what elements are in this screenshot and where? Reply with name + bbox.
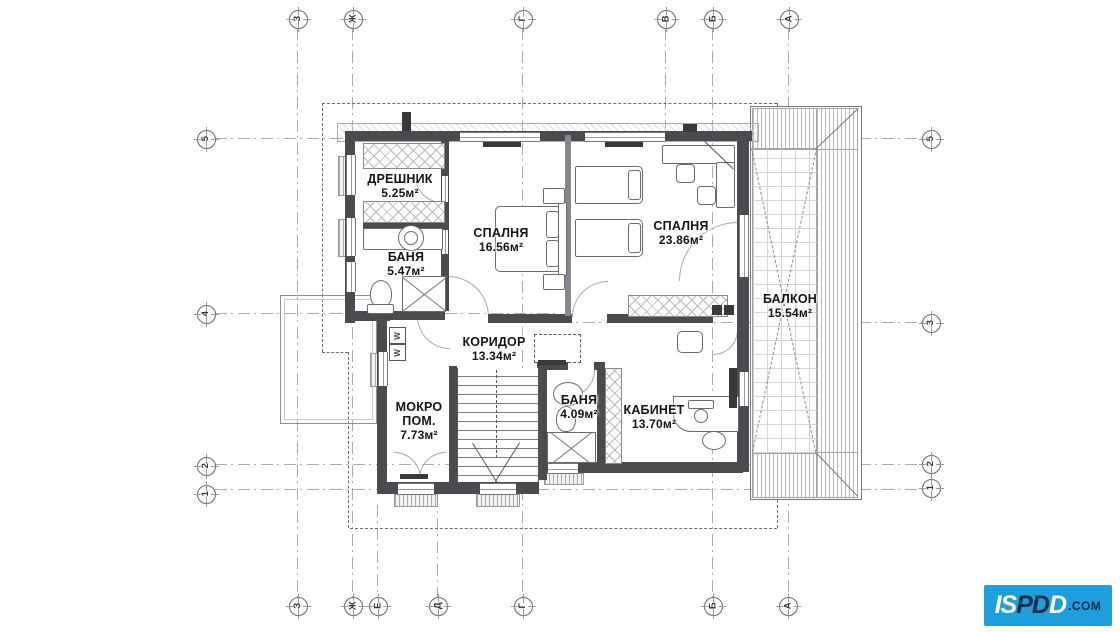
staircase	[457, 368, 539, 482]
grid-marker-label: В	[661, 16, 671, 23]
chimney	[683, 124, 697, 132]
nightstand	[543, 274, 565, 290]
room-area: 15.54м²	[744, 306, 836, 320]
grid-marker-bottom-Д: Д	[429, 597, 448, 616]
door-arc	[448, 276, 489, 317]
room-name: КОРИДОР	[462, 335, 525, 349]
grid-marker-left-1: 1	[197, 485, 216, 504]
wardrobe	[363, 143, 445, 169]
pillow	[628, 170, 641, 200]
grid-marker-left-5: 5	[197, 130, 216, 149]
grid-marker-label: Г	[518, 16, 528, 21]
wall-left-lower	[377, 318, 387, 492]
grid-marker-label: Б	[708, 603, 718, 610]
cabinet-block	[712, 305, 722, 315]
window	[548, 463, 578, 474]
room-area: 7.73м²	[389, 428, 449, 442]
room-name: СПАЛНЯ	[653, 219, 708, 233]
room-label-banya2: БАНЯ 4.09м²	[548, 393, 610, 421]
radiator	[605, 142, 643, 147]
door-arc	[417, 316, 450, 349]
grid-marker-label: 1	[201, 491, 211, 496]
grid-marker-top-З: З	[289, 10, 308, 29]
grid-marker-bottom-З: З	[289, 597, 308, 616]
grid-line-v	[437, 495, 438, 598]
stair-direction-line	[496, 370, 497, 458]
window	[739, 372, 749, 406]
grid-marker-top-Г: Г	[514, 10, 533, 29]
room-area: 13.70м²	[608, 417, 700, 431]
window	[480, 483, 516, 495]
roof-outline	[322, 103, 777, 104]
wall-interior	[594, 362, 605, 370]
shower	[402, 276, 446, 312]
grid-marker-label: Ж	[348, 15, 358, 24]
grid-marker-label: 3	[926, 320, 936, 325]
grid-marker-label: 5	[201, 136, 211, 141]
window-sill	[544, 473, 584, 485]
washer-label: W	[394, 332, 402, 340]
grid-marker-label: А	[784, 16, 794, 23]
chair	[697, 186, 716, 205]
grid-marker-label: Б	[708, 16, 718, 23]
grid-marker-top-А: А	[780, 10, 799, 29]
room-area: 5.25м²	[352, 186, 448, 200]
room-label-balkon: БАЛКОН 15.54м²	[744, 292, 836, 320]
logo-letter: P	[1016, 591, 1032, 619]
toilet-tank	[367, 304, 394, 314]
logo-letter: D	[1049, 591, 1066, 619]
grid-marker-label: З	[293, 603, 303, 609]
logo-suffix: .COM	[1068, 599, 1101, 613]
room-name: МОКРО ПОМ.	[396, 400, 443, 428]
grid-marker-bottom-Г: Г	[514, 597, 533, 616]
wardrobe	[363, 201, 445, 223]
grid-marker-top-В: В	[657, 10, 676, 29]
window	[398, 483, 434, 495]
grid-marker-label: Д	[433, 603, 443, 610]
logo-wordmark: ISPDD	[995, 593, 1066, 618]
site-logo[interactable]: ISPDD .COM	[984, 585, 1112, 626]
grid-marker-right-3: 3	[922, 314, 941, 333]
grid-marker-label: 1	[926, 485, 936, 490]
room-label-mokro: МОКРО ПОМ. 7.73м²	[389, 400, 449, 442]
floor-plan-canvas: W W ДРЕШНИК 5.25м² БАНЯ 5.47м²	[0, 0, 1120, 632]
lintel	[538, 360, 566, 365]
wall-interior	[488, 314, 572, 323]
shelf	[729, 368, 737, 408]
wall-interior	[345, 311, 445, 320]
headboard	[558, 202, 567, 276]
radiator	[400, 474, 428, 479]
grid-marker-top-Б: Б	[704, 10, 723, 29]
window	[346, 262, 356, 292]
chair	[677, 331, 703, 353]
washer-label: W	[394, 349, 402, 357]
logo-letter: S	[1001, 591, 1017, 619]
cabinet-block	[724, 305, 734, 315]
room-area: 16.56м²	[455, 240, 547, 254]
grid-marker-label: 2	[201, 463, 211, 468]
chair	[702, 431, 726, 450]
grid-marker-label: А	[783, 603, 793, 610]
room-label-kabinet: КАБИНЕТ 13.70м²	[608, 403, 700, 431]
room-name: БАЛКОН	[763, 292, 817, 306]
grid-marker-label: Ж	[348, 602, 358, 611]
washer-unit: W	[389, 344, 406, 361]
door-arc	[713, 330, 738, 355]
grid-marker-bottom-А: А	[779, 597, 798, 616]
room-name: БАНЯ	[388, 250, 424, 264]
grid-marker-bottom-Б: Б	[704, 597, 723, 616]
grid-marker-label: Е	[373, 603, 383, 609]
room-area: 13.34м²	[448, 349, 540, 363]
nightstand	[543, 188, 565, 204]
room-name: ДРЕШНИК	[367, 172, 432, 186]
room-name: БАНЯ	[561, 393, 597, 407]
grid-marker-label: 2	[926, 461, 936, 466]
chimney	[402, 112, 411, 131]
grid-marker-label: Г	[518, 603, 528, 608]
grid-marker-bottom-Е: Е	[369, 597, 388, 616]
logo-letter: D	[1032, 591, 1049, 619]
window	[460, 132, 540, 142]
room-label-spalnya1: СПАЛНЯ 16.56м²	[455, 226, 547, 254]
grid-marker-left-2: 2	[197, 457, 216, 476]
grid-marker-bottom-Ж: Ж	[344, 597, 363, 616]
wall-interior	[449, 366, 457, 492]
ceiling-opening	[534, 334, 581, 363]
balcony-door	[739, 215, 749, 277]
room-label-koridor: КОРИДОР 13.34м²	[448, 335, 540, 363]
grid-marker-right-2: 2	[922, 455, 941, 474]
room-area: 23.86м²	[634, 233, 728, 247]
grid-marker-right-1: 1	[922, 479, 941, 498]
room-label-banya1: БАНЯ 5.47м²	[366, 250, 446, 278]
window-sill	[476, 494, 520, 507]
room-label-spalnya2: СПАЛНЯ 23.86м²	[634, 219, 728, 247]
door-arc	[572, 281, 608, 317]
sink-drain	[404, 231, 418, 245]
grid-marker-right-5: 5	[922, 130, 941, 149]
chair	[676, 164, 695, 183]
grid-line-v	[377, 505, 378, 598]
grid-line-v	[665, 28, 666, 130]
window-sill	[394, 494, 438, 507]
room-name: КАБИНЕТ	[623, 403, 684, 417]
grid-marker-label: З	[293, 16, 303, 22]
room-area: 5.47м²	[366, 264, 446, 278]
grid-marker-label: 5	[926, 136, 936, 141]
room-name: СПАЛНЯ	[473, 226, 528, 240]
grid-marker-left-4: 4	[197, 305, 216, 324]
roof-outline	[350, 528, 777, 529]
grid-marker-label: 4	[201, 311, 211, 316]
room-area: 4.09м²	[548, 407, 610, 421]
window	[585, 132, 665, 142]
shower	[547, 432, 596, 463]
balcony-roof-band	[752, 452, 858, 498]
wall-top	[345, 131, 752, 141]
window	[378, 352, 388, 386]
grid-marker-top-Ж: Ж	[344, 10, 363, 29]
room-label-dreshnik: ДРЕШНИК 5.25м²	[352, 172, 448, 200]
washer-unit: W	[389, 327, 406, 344]
radiator	[483, 142, 521, 147]
window	[346, 218, 356, 256]
